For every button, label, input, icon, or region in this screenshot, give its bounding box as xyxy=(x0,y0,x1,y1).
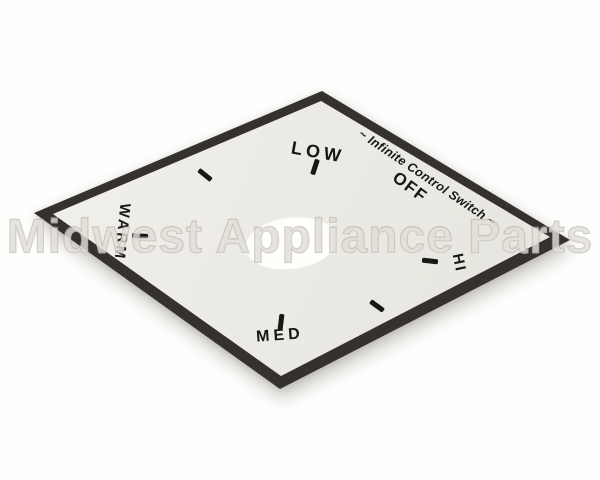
watermark-text: Midwest Appliance Parts xyxy=(7,210,594,265)
product-photo: ~ Infinite Control Switch ~ LOW OFF WARM… xyxy=(0,0,600,480)
